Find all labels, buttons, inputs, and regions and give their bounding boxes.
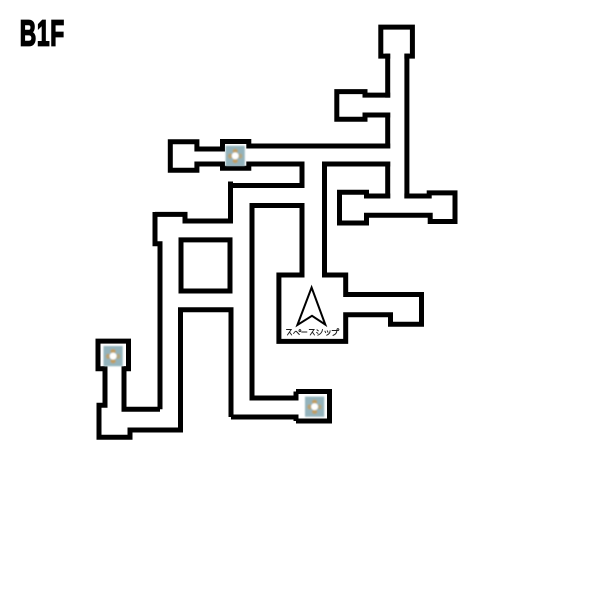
svg-text:B1F: B1F (20, 13, 65, 54)
